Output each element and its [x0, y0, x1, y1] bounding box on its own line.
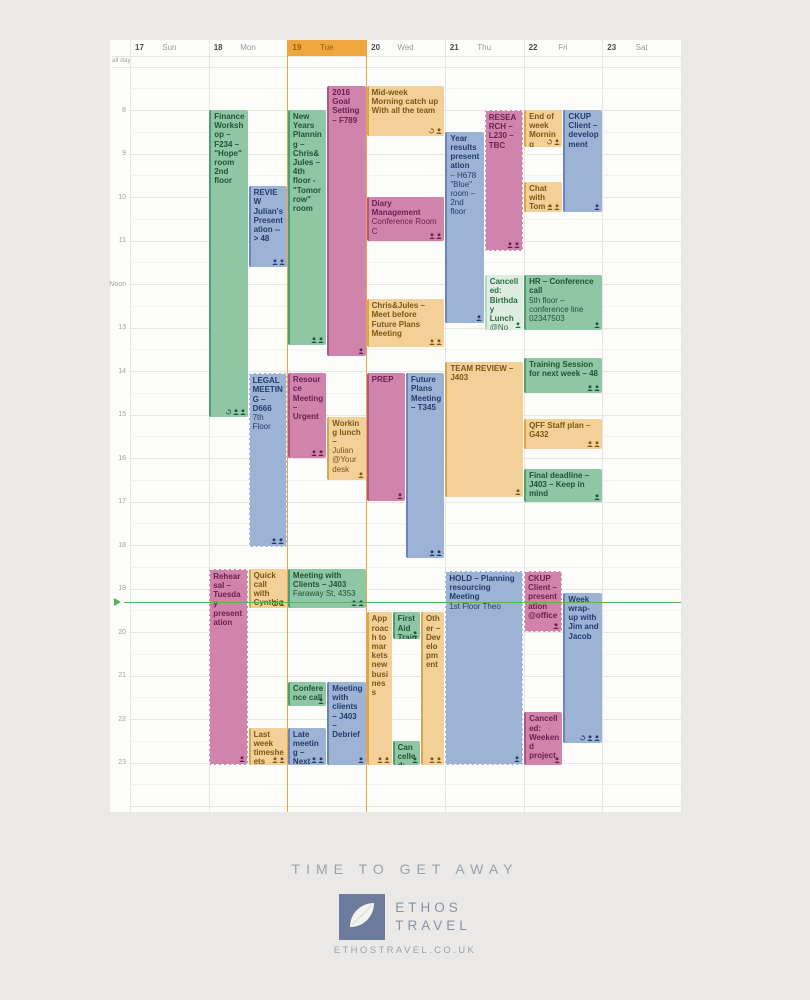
person-icon: [358, 757, 364, 763]
event-icons: [272, 259, 285, 265]
event-title: CKUP Client – presentation @office: [528, 574, 557, 620]
event-icons: [429, 339, 442, 345]
person-icon: [429, 757, 435, 763]
event-title: Cancelled: Birthday Lunch: [490, 277, 518, 323]
person-icon: [429, 550, 435, 556]
event-title: Approach to markets new business: [372, 614, 389, 697]
event-title: 2016 Goal Setting – F789: [332, 88, 359, 125]
event-title: Diary Management: [372, 199, 421, 217]
person-icon: [384, 757, 390, 763]
calendar-event[interactable]: Cancelled: Drinks: [393, 741, 420, 765]
event-icons: [271, 538, 284, 544]
event-title: Resource Meeting – Urgent: [293, 375, 323, 421]
event-title: Meeting with clients – J403 – Debrief: [332, 684, 362, 739]
event-icons: [429, 233, 442, 239]
event-icons: [546, 139, 560, 145]
event-detail: 5th floor – conference line 02347503: [529, 296, 599, 324]
event-title: Future Plans Meeting – T345: [411, 375, 441, 412]
event-title: Training Session for next week – 48: [529, 360, 598, 378]
person-icon: [429, 233, 435, 239]
calendar-event[interactable]: REVIEW Julian's Presentation --> 48: [249, 186, 287, 266]
event-title: QFF Staff plan – G432: [529, 421, 590, 439]
advert-page: all day891011Noon13141516171819202122231…: [0, 0, 810, 1000]
brand-line-2: TRAVEL: [395, 917, 471, 935]
hour-label: 8: [100, 107, 126, 114]
calendar-event[interactable]: Year results presentation– H678 "Blue" r…: [445, 132, 483, 323]
person-icon: [594, 385, 600, 391]
calendar-event[interactable]: RESEARCH – L230 – TBC: [485, 110, 523, 251]
person-icon: [436, 339, 442, 345]
event-icons: [377, 757, 390, 763]
event-icons: [239, 756, 245, 762]
calendar-event[interactable]: Final deadline – J403 – Keep in mind: [524, 469, 602, 502]
calendar-event[interactable]: First Aid Training: [393, 612, 420, 638]
event-detail: Faraway St, 4353: [293, 589, 363, 598]
grid-day-line: [130, 40, 131, 812]
person-icon: [507, 242, 513, 248]
hour-label: 19: [100, 585, 126, 592]
repeat-icon: [546, 139, 553, 145]
grid-hour-line: [129, 806, 681, 807]
event-title: Working lunch –: [332, 419, 360, 446]
day-name[interactable]: Mon: [209, 43, 288, 52]
calendar-event[interactable]: Other – Development: [421, 612, 444, 764]
day-name[interactable]: Fri: [524, 43, 603, 52]
event-title: Cancelled: Weekend project: [529, 714, 559, 760]
event-title: Chris&Jules – Meet before Future Plans M…: [372, 301, 425, 338]
calendar-event[interactable]: New Years Planning – Chris&Jules – 4th f…: [288, 110, 326, 345]
calendar-event[interactable]: Chat with Tom – Tom's desk: [524, 182, 562, 212]
person-icon: [436, 233, 442, 239]
event-icons: [412, 757, 418, 763]
person-icon: [397, 493, 403, 499]
calendar-event[interactable]: 2016 Goal Setting – F789: [327, 86, 365, 356]
event-icons: [318, 698, 324, 704]
repeat-icon: [579, 735, 586, 741]
event-icons: [515, 322, 521, 328]
person-icon: [554, 139, 560, 145]
event-icons: [594, 322, 600, 328]
person-icon: [594, 204, 600, 210]
event-icons: [515, 489, 521, 495]
person-icon: [476, 315, 482, 321]
person-icon: [587, 385, 593, 391]
hour-label: 14: [100, 368, 126, 375]
calendar-event[interactable]: Future Plans Meeting – T345: [406, 373, 444, 558]
person-icon: [272, 259, 278, 265]
event-icons: [507, 242, 520, 248]
day-name[interactable]: Thu: [445, 43, 524, 52]
calendar-event[interactable]: Late meeting – Next steps: [288, 728, 326, 765]
event-icons: [594, 494, 600, 500]
campaign-tagline: TIME TO GET AWAY: [0, 861, 810, 877]
person-icon: [358, 472, 364, 478]
event-title: Finance Workshop – F234 – "Hope" room 2n…: [214, 112, 244, 185]
event-icons: [428, 128, 442, 134]
event-icons: [311, 450, 324, 456]
current-time-line: [124, 602, 681, 603]
person-icon: [594, 322, 600, 328]
day-name[interactable]: Wed: [366, 43, 445, 52]
person-icon: [318, 337, 324, 343]
person-icon: [318, 757, 324, 763]
calendar-event[interactable]: Finance Workshop – F234 – "Hope" room 2n…: [209, 110, 247, 417]
event-title: New Years Planning – Chris&Jules – 4th f…: [293, 112, 322, 213]
day-name[interactable]: Tue: [287, 43, 366, 52]
event-icons: [587, 385, 600, 391]
event-icons: [225, 409, 246, 415]
calendar-event[interactable]: End of week Morning catch-up: [524, 110, 562, 147]
person-icon: [318, 450, 324, 456]
hour-label: 17: [100, 498, 126, 505]
calendar-event[interactable]: Last week timesheets supervision – K182: [249, 728, 287, 765]
header-separator: [112, 56, 681, 57]
calendar-event[interactable]: HR – Conference call5th floor – conferen…: [524, 275, 602, 329]
person-icon: [233, 409, 239, 415]
calendar-event[interactable]: Cancelled: Weekend project: [524, 712, 562, 764]
event-icons: [272, 757, 285, 763]
event-title: Final deadline – J403 – Keep in mind: [529, 471, 589, 498]
event-title: Mid-week Morning catch up With all the t…: [372, 88, 439, 115]
person-icon: [594, 494, 600, 500]
calendar-event[interactable]: Meeting with clients – J403 – Debrief: [327, 682, 365, 765]
hour-label: 23: [100, 759, 126, 766]
event-title: HOLD – Planning resourcing Meeting: [449, 574, 514, 601]
person-icon: [514, 756, 520, 762]
event-icons: [514, 756, 520, 762]
event-icons: [412, 631, 418, 637]
person-icon: [279, 757, 285, 763]
event-icons: [554, 757, 560, 763]
event-icons: [579, 735, 600, 741]
calendar-event[interactable]: Chris&Jules – Meet before Future Plans M…: [367, 299, 445, 347]
person-icon: [271, 538, 277, 544]
event-title: REVIEW Julian's Presentation --> 48: [254, 188, 283, 243]
person-icon: [311, 757, 317, 763]
hour-label: 10: [100, 194, 126, 201]
leaf-logo-square: [339, 894, 385, 940]
event-title: CKUP Client – development: [568, 112, 598, 149]
person-icon: [515, 489, 521, 495]
event-title: Year results presentation: [450, 134, 479, 171]
person-icon: [436, 550, 442, 556]
all-day-label: all day: [112, 57, 131, 64]
person-icon: [554, 757, 560, 763]
event-detail: 1st Floor Theo: [449, 602, 519, 611]
calendar-event[interactable]: TEAM REVIEW – J403: [445, 362, 523, 497]
grid-hour-line: [129, 67, 681, 68]
calendar-event[interactable]: Diary ManagementConference Room C: [367, 197, 445, 241]
event-icons: [358, 348, 364, 354]
person-icon: [587, 735, 593, 741]
calendar-event[interactable]: Mid-week Morning catch up With all the t…: [367, 86, 445, 136]
grid-day-line: [681, 40, 682, 812]
person-icon: [278, 538, 284, 544]
calendar-event[interactable]: Resource Meeting – Urgent: [288, 373, 326, 458]
event-icons: [311, 337, 324, 343]
person-icon: [311, 450, 317, 456]
person-icon: [587, 441, 593, 447]
calendar-event[interactable]: Training Session for next week – 48: [524, 358, 602, 393]
calendar-event[interactable]: Cancelled: Birthday Lunch@No Way Restaur…: [485, 275, 523, 329]
calendar-event[interactable]: Approach to markets new business: [367, 612, 392, 764]
calendar-event[interactable]: QFF Staff plan – G432: [524, 419, 602, 449]
calendar-event[interactable]: Conference call – contact 02354: [288, 682, 326, 706]
hour-label: 13: [100, 324, 126, 331]
calendar-event[interactable]: LEGAL MEETING – D6667th Floor: [249, 373, 287, 547]
event-title: PREP: [372, 375, 394, 384]
brand-url[interactable]: ETHOSTRAVEL.CO.UK: [334, 945, 477, 956]
calendar-event[interactable]: Working lunch –Julian @Your desk: [327, 417, 365, 480]
event-icons: [429, 550, 442, 556]
person-icon: [412, 757, 418, 763]
person-icon: [358, 348, 364, 354]
day-name[interactable]: Sun: [130, 43, 209, 52]
event-title: LEGAL MEETING – D666: [253, 376, 283, 413]
hour-label: 11: [100, 237, 126, 244]
calendar-event[interactable]: PREP: [367, 373, 405, 501]
event-title: TEAM REVIEW – J403: [450, 364, 513, 382]
person-icon: [239, 756, 245, 762]
event-detail: Julian @Your desk: [332, 446, 362, 474]
person-icon: [311, 337, 317, 343]
hour-label: Noon: [100, 281, 126, 288]
person-icon: [436, 757, 442, 763]
event-title: HR – Conference call: [529, 277, 593, 295]
event-title: Other – Development: [426, 614, 441, 669]
person-icon: [514, 242, 520, 248]
person-icon: [279, 259, 285, 265]
event-detail: 7th Floor: [253, 413, 283, 431]
grid-halfhour-line: [130, 784, 681, 785]
person-icon: [429, 339, 435, 345]
event-icons: [397, 493, 403, 499]
hour-label: 21: [100, 672, 126, 679]
event-icons: [587, 441, 600, 447]
person-icon: [594, 735, 600, 741]
repeat-icon: [428, 128, 435, 134]
person-icon: [412, 631, 418, 637]
day-name[interactable]: Sat: [602, 43, 681, 52]
calendar-event[interactable]: CKUP Client – development: [563, 110, 601, 212]
event-icons: [358, 757, 364, 763]
event-icons: [476, 315, 482, 321]
person-icon: [554, 204, 560, 210]
brand-name: ETHOS TRAVEL: [395, 899, 471, 935]
person-icon: [318, 698, 324, 704]
event-icons: [553, 623, 559, 629]
grid-halfhour-line: [130, 567, 681, 568]
person-icon: [547, 204, 553, 210]
brand-logo: ETHOS TRAVEL ETHOSTRAVEL.CO.UK: [0, 894, 810, 956]
hour-label: 9: [100, 150, 126, 157]
event-icons: [429, 757, 442, 763]
grid-day-line: [602, 40, 603, 812]
person-icon: [240, 409, 246, 415]
event-title: RESEARCH – L230 – TBC: [489, 113, 517, 150]
event-icons: [547, 204, 560, 210]
hour-label: 20: [100, 629, 126, 636]
person-icon: [377, 757, 383, 763]
person-icon: [436, 128, 442, 134]
current-time-arrow: [114, 598, 121, 606]
event-icons: [358, 472, 364, 478]
event-icons: [594, 204, 600, 210]
event-detail: – H678 "Blue" room – 2nd floor: [450, 171, 480, 217]
calendar-event[interactable]: HOLD – Planning resourcing Meeting1st Fl…: [445, 571, 523, 765]
calendar-week-grid: all day891011Noon13141516171819202122231…: [0, 0, 810, 1000]
calendar-event[interactable]: Rehearsal – Tuesday presentation: [209, 569, 247, 765]
event-icons: [311, 757, 324, 763]
calendar-event[interactable]: Week wrap-up with Jim and Jacob: [563, 593, 601, 743]
repeat-icon: [225, 409, 232, 415]
hour-label: 22: [100, 716, 126, 723]
leaf-icon: [345, 898, 379, 937]
hour-label: 15: [100, 411, 126, 418]
hour-label: 16: [100, 455, 126, 462]
person-icon: [594, 441, 600, 447]
hour-label: 18: [100, 542, 126, 549]
person-icon: [515, 322, 521, 328]
event-title: Meeting with Clients – J403: [293, 571, 346, 589]
event-title: Rehearsal – Tuesday presentation: [213, 572, 242, 627]
person-icon: [272, 757, 278, 763]
brand-line-1: ETHOS: [395, 899, 471, 917]
person-icon: [553, 623, 559, 629]
